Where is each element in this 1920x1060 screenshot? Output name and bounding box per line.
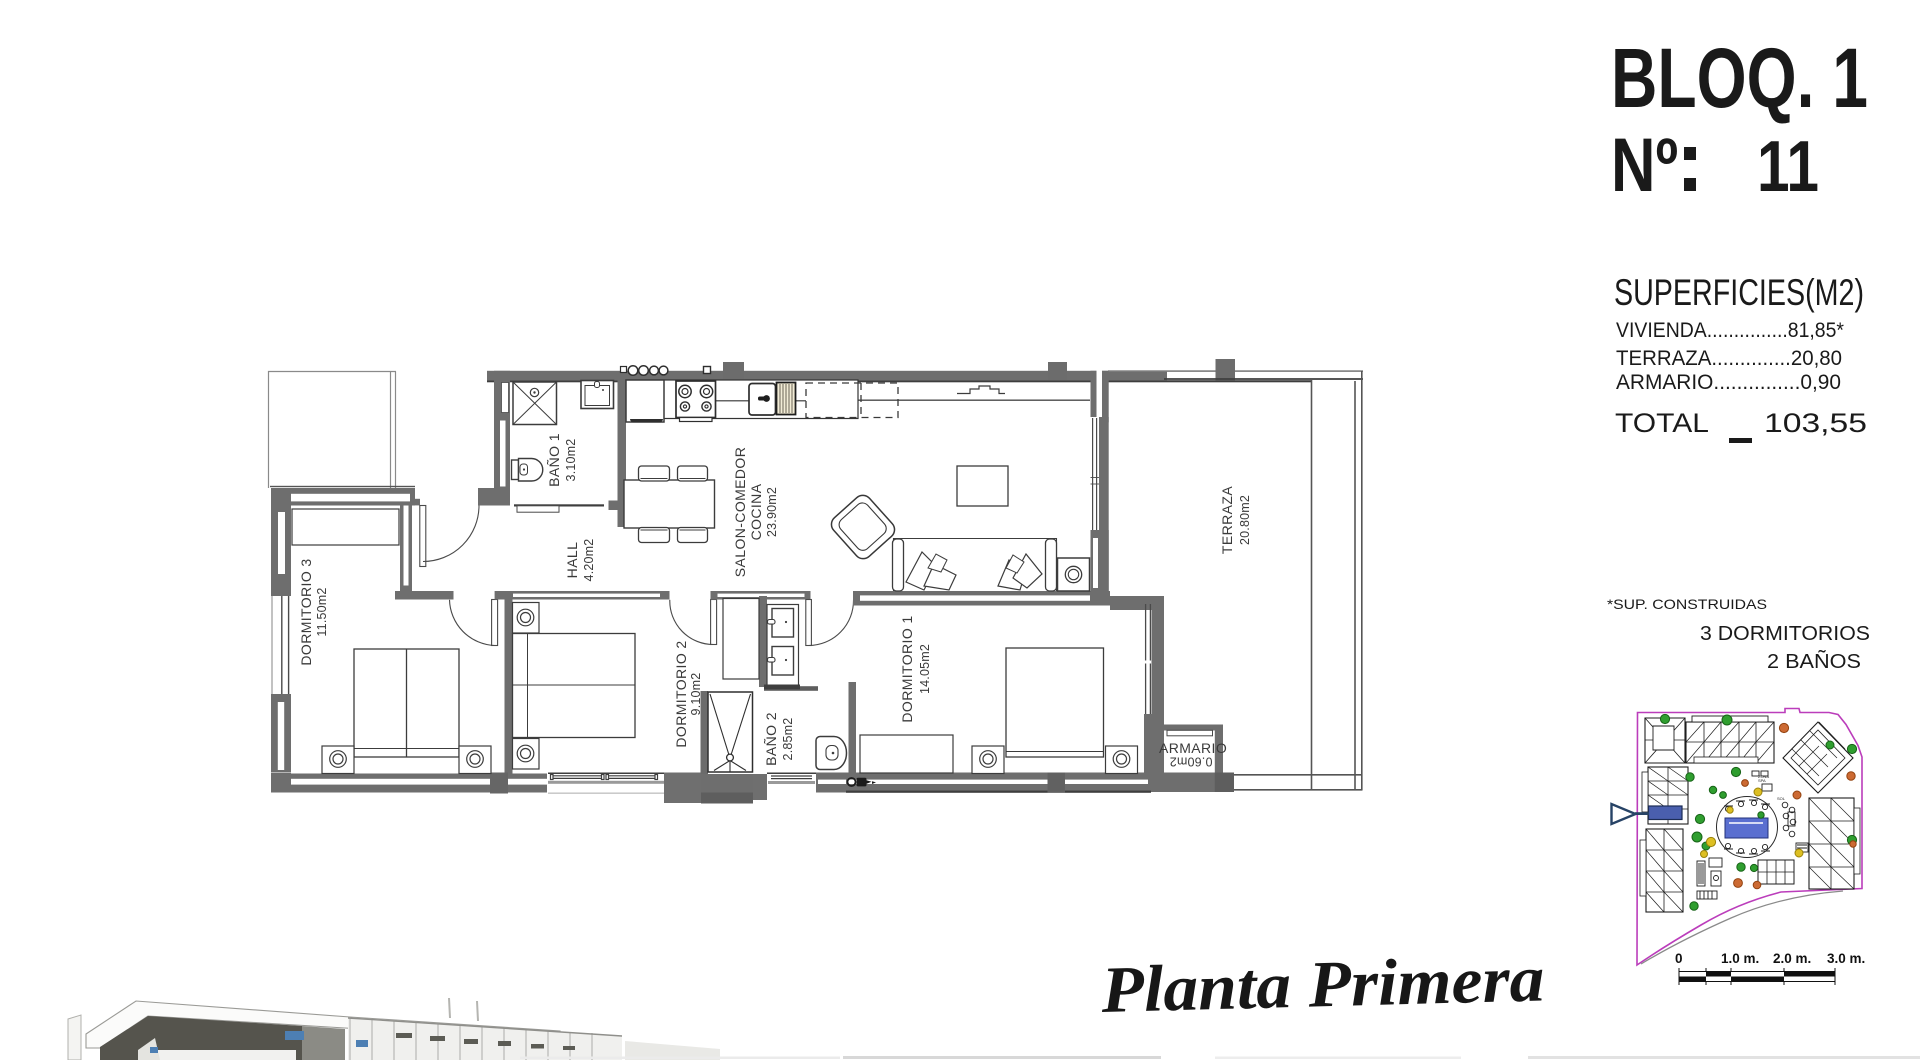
svg-text:3.10m2: 3.10m2: [564, 439, 578, 482]
svg-text:*SUP. CONSTRUIDAS: *SUP. CONSTRUIDAS: [1607, 596, 1767, 612]
svg-text:2.0 m.: 2.0 m.: [1773, 951, 1811, 966]
svg-text:SUPERFICIES(M2): SUPERFICIES(M2): [1614, 272, 1864, 313]
svg-text:COCINA: COCINA: [748, 483, 764, 540]
svg-text:23.90m2: 23.90m2: [765, 487, 779, 537]
svg-text:14.05m2: 14.05m2: [918, 644, 932, 694]
svg-text:DORMITORIO 2: DORMITORIO 2: [673, 640, 689, 747]
svg-text:2 BAÑOS: 2 BAÑOS: [1767, 649, 1861, 673]
svg-text:VIVIENDA...............81,85*: VIVIENDA...............81,85*: [1616, 319, 1844, 342]
svg-text:BAÑO 1: BAÑO 1: [546, 433, 562, 487]
svg-text:3.0 m.: 3.0 m.: [1827, 951, 1865, 966]
svg-text:11.50m2: 11.50m2: [315, 587, 329, 636]
svg-text:DORMITORIO 3: DORMITORIO 3: [298, 558, 314, 665]
svg-text:SPA: SPA: [1758, 778, 1766, 783]
svg-text:BLOQ. 1: BLOQ. 1: [1611, 31, 1868, 125]
svg-text:Planta Primera: Planta Primera: [1099, 942, 1545, 1027]
svg-text:TERRAZA..............20,80: TERRAZA..............20,80: [1616, 347, 1842, 370]
svg-text:0.60m2: 0.60m2: [1170, 755, 1213, 769]
svg-text:103,55: 103,55: [1764, 408, 1867, 438]
svg-text:3 DORMITORIOS: 3 DORMITORIOS: [1700, 623, 1870, 645]
svg-text:0: 0: [1675, 951, 1683, 966]
svg-text:Nº: Nº: [1611, 123, 1678, 208]
svg-text:1.0 m.: 1.0 m.: [1721, 951, 1759, 966]
svg-text:ARMARIO...............0,90: ARMARIO...............0,90: [1616, 371, 1841, 394]
svg-text:DORMITORIO 1: DORMITORIO 1: [899, 615, 915, 722]
svg-text:4.20m2: 4.20m2: [582, 539, 596, 582]
svg-text:20.80m2: 20.80m2: [1238, 495, 1252, 545]
svg-text:SOL: SOL: [1777, 796, 1786, 801]
svg-text:ARMARIO: ARMARIO: [1159, 740, 1227, 756]
svg-text:2.85m2: 2.85m2: [781, 718, 795, 761]
svg-text:TERRAZA: TERRAZA: [1219, 486, 1235, 554]
svg-text:11: 11: [1757, 127, 1819, 207]
svg-text:HALL: HALL: [564, 542, 580, 579]
svg-text:9.10m2: 9.10m2: [689, 673, 703, 716]
svg-text:TOTAL: TOTAL: [1615, 408, 1709, 438]
svg-text:SALON-COMEDOR: SALON-COMEDOR: [732, 447, 748, 577]
svg-text:BAÑO 2: BAÑO 2: [763, 712, 779, 766]
